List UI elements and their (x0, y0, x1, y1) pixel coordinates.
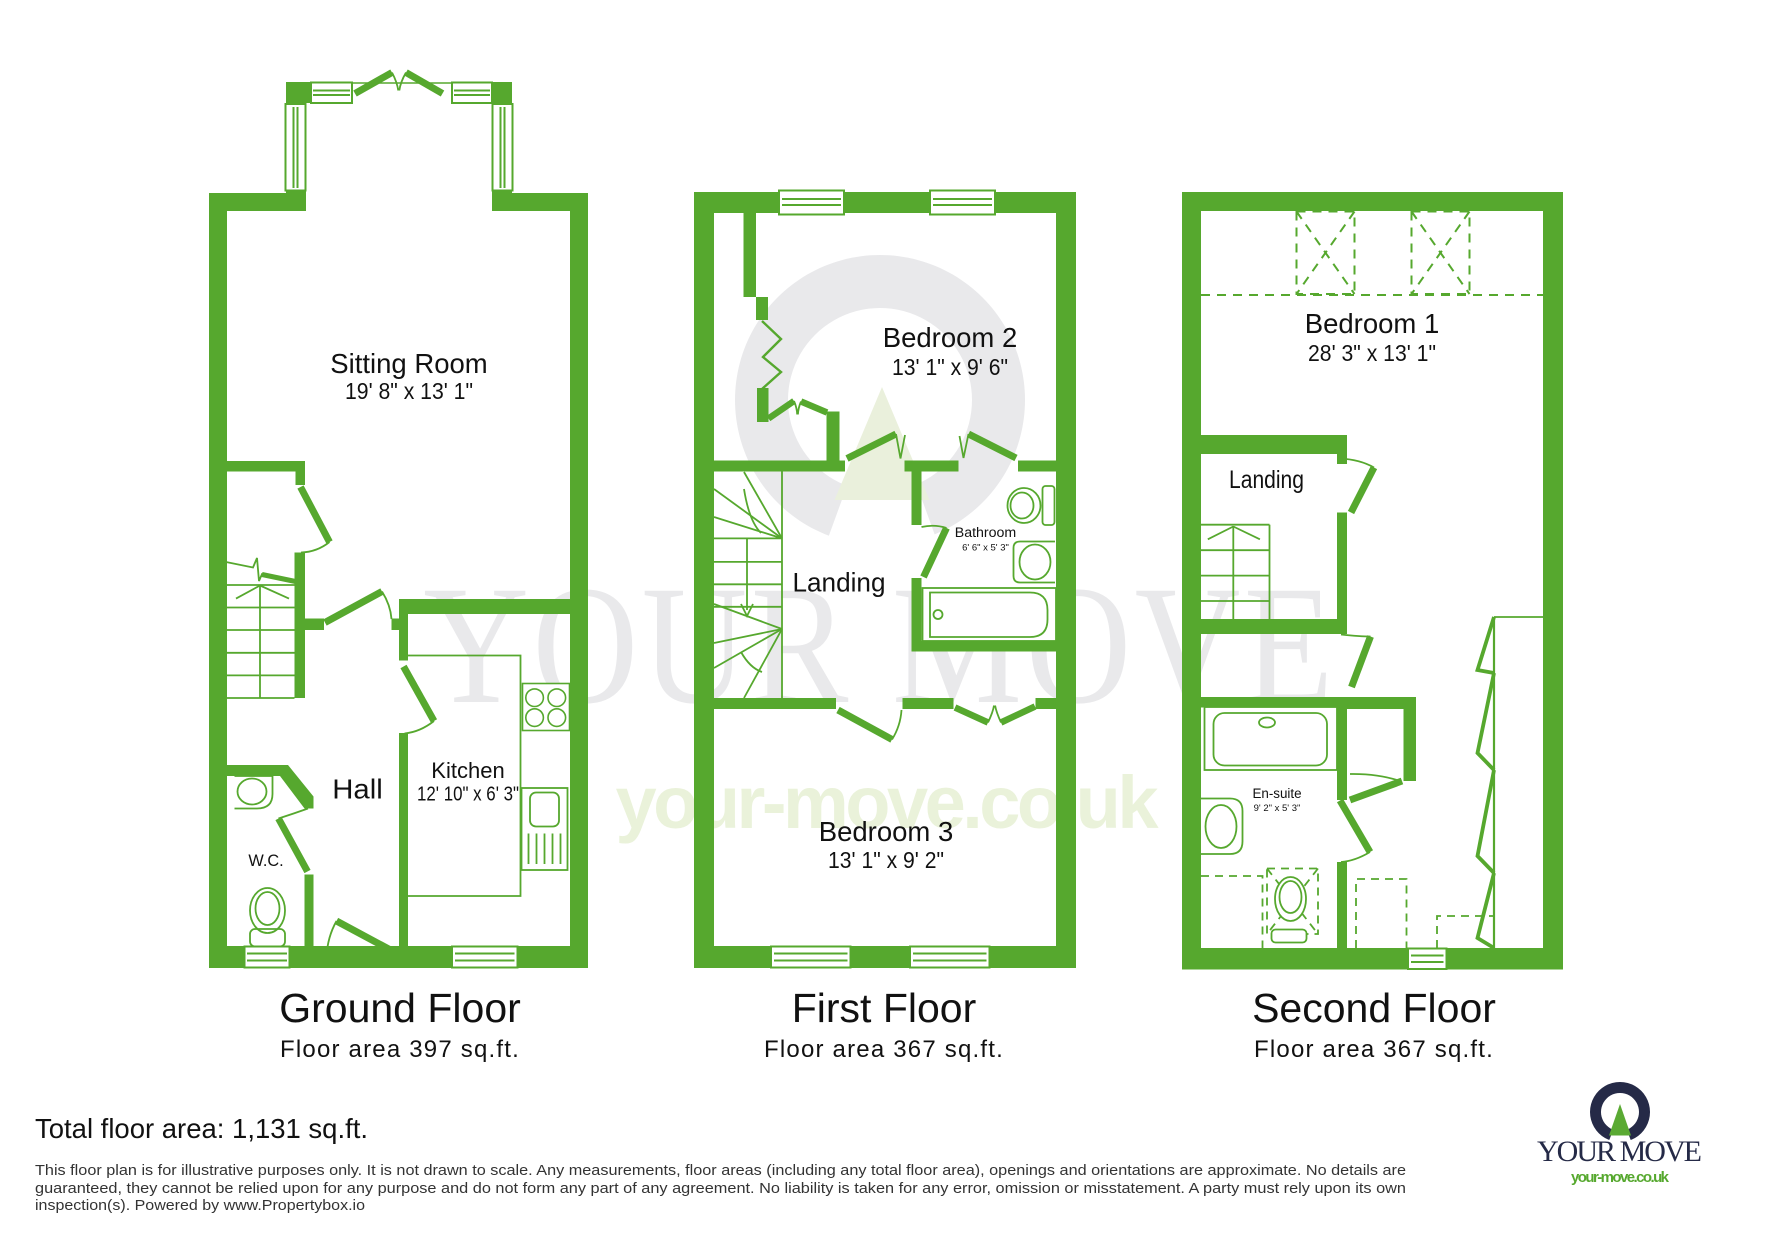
svg-text:Second Floor: Second Floor (1252, 985, 1496, 1031)
svg-text:12' 10" x 6' 3": 12' 10" x 6' 3" (417, 783, 519, 806)
svg-text:YOUR MOVE: YOUR MOVE (1537, 1135, 1703, 1168)
svg-text:13' 1" x 9' 6": 13' 1" x 9' 6" (892, 354, 1008, 380)
svg-text:your-move.co.uk: your-move.co.uk (1571, 1169, 1670, 1186)
svg-text:En-suite: En-suite (1252, 786, 1301, 801)
svg-text:19' 8" x 13' 1": 19' 8" x 13' 1" (345, 378, 473, 404)
svg-text:Bedroom 3: Bedroom 3 (819, 816, 954, 847)
svg-text:Sitting Room: Sitting Room (330, 348, 487, 379)
svg-text:Hall: Hall (332, 774, 383, 805)
svg-text:28' 3" x 13' 1": 28' 3" x 13' 1" (1308, 340, 1436, 366)
svg-text:Ground Floor: Ground Floor (279, 985, 521, 1031)
svg-text:Landing: Landing (793, 568, 886, 598)
svg-text:Bedroom 2: Bedroom 2 (883, 322, 1018, 353)
svg-text:Total floor area: 1,131 sq.ft.: Total floor area: 1,131 sq.ft. (35, 1113, 368, 1144)
svg-text:13' 1" x 9' 2": 13' 1" x 9' 2" (828, 847, 944, 873)
svg-text:Floor area 367 sq.ft.: Floor area 367 sq.ft. (1254, 1036, 1494, 1063)
svg-text:6' 6" x 5' 3": 6' 6" x 5' 3" (962, 543, 1009, 554)
svg-text:Kitchen: Kitchen (431, 758, 504, 783)
svg-text:Bedroom 1: Bedroom 1 (1305, 308, 1440, 339)
svg-text:This floor plan is for illustr: This floor plan is for illustrative purp… (35, 1162, 1406, 1179)
svg-text:guaranteed, they cannot be rel: guaranteed, they cannot be relied upon f… (35, 1180, 1406, 1197)
svg-text:First Floor: First Floor (792, 985, 977, 1031)
svg-text:inspection(s). Powered by www.: inspection(s). Powered by www.Propertybo… (35, 1197, 365, 1214)
svg-text:9' 2" x 5' 3": 9' 2" x 5' 3" (1254, 803, 1301, 814)
svg-text:Floor area 397 sq.ft.: Floor area 397 sq.ft. (280, 1036, 520, 1063)
svg-text:Landing: Landing (1229, 466, 1304, 494)
svg-text:W.C.: W.C. (248, 852, 283, 870)
svg-text:Bathroom: Bathroom (955, 525, 1017, 541)
svg-text:Floor area 367 sq.ft.: Floor area 367 sq.ft. (764, 1036, 1004, 1063)
